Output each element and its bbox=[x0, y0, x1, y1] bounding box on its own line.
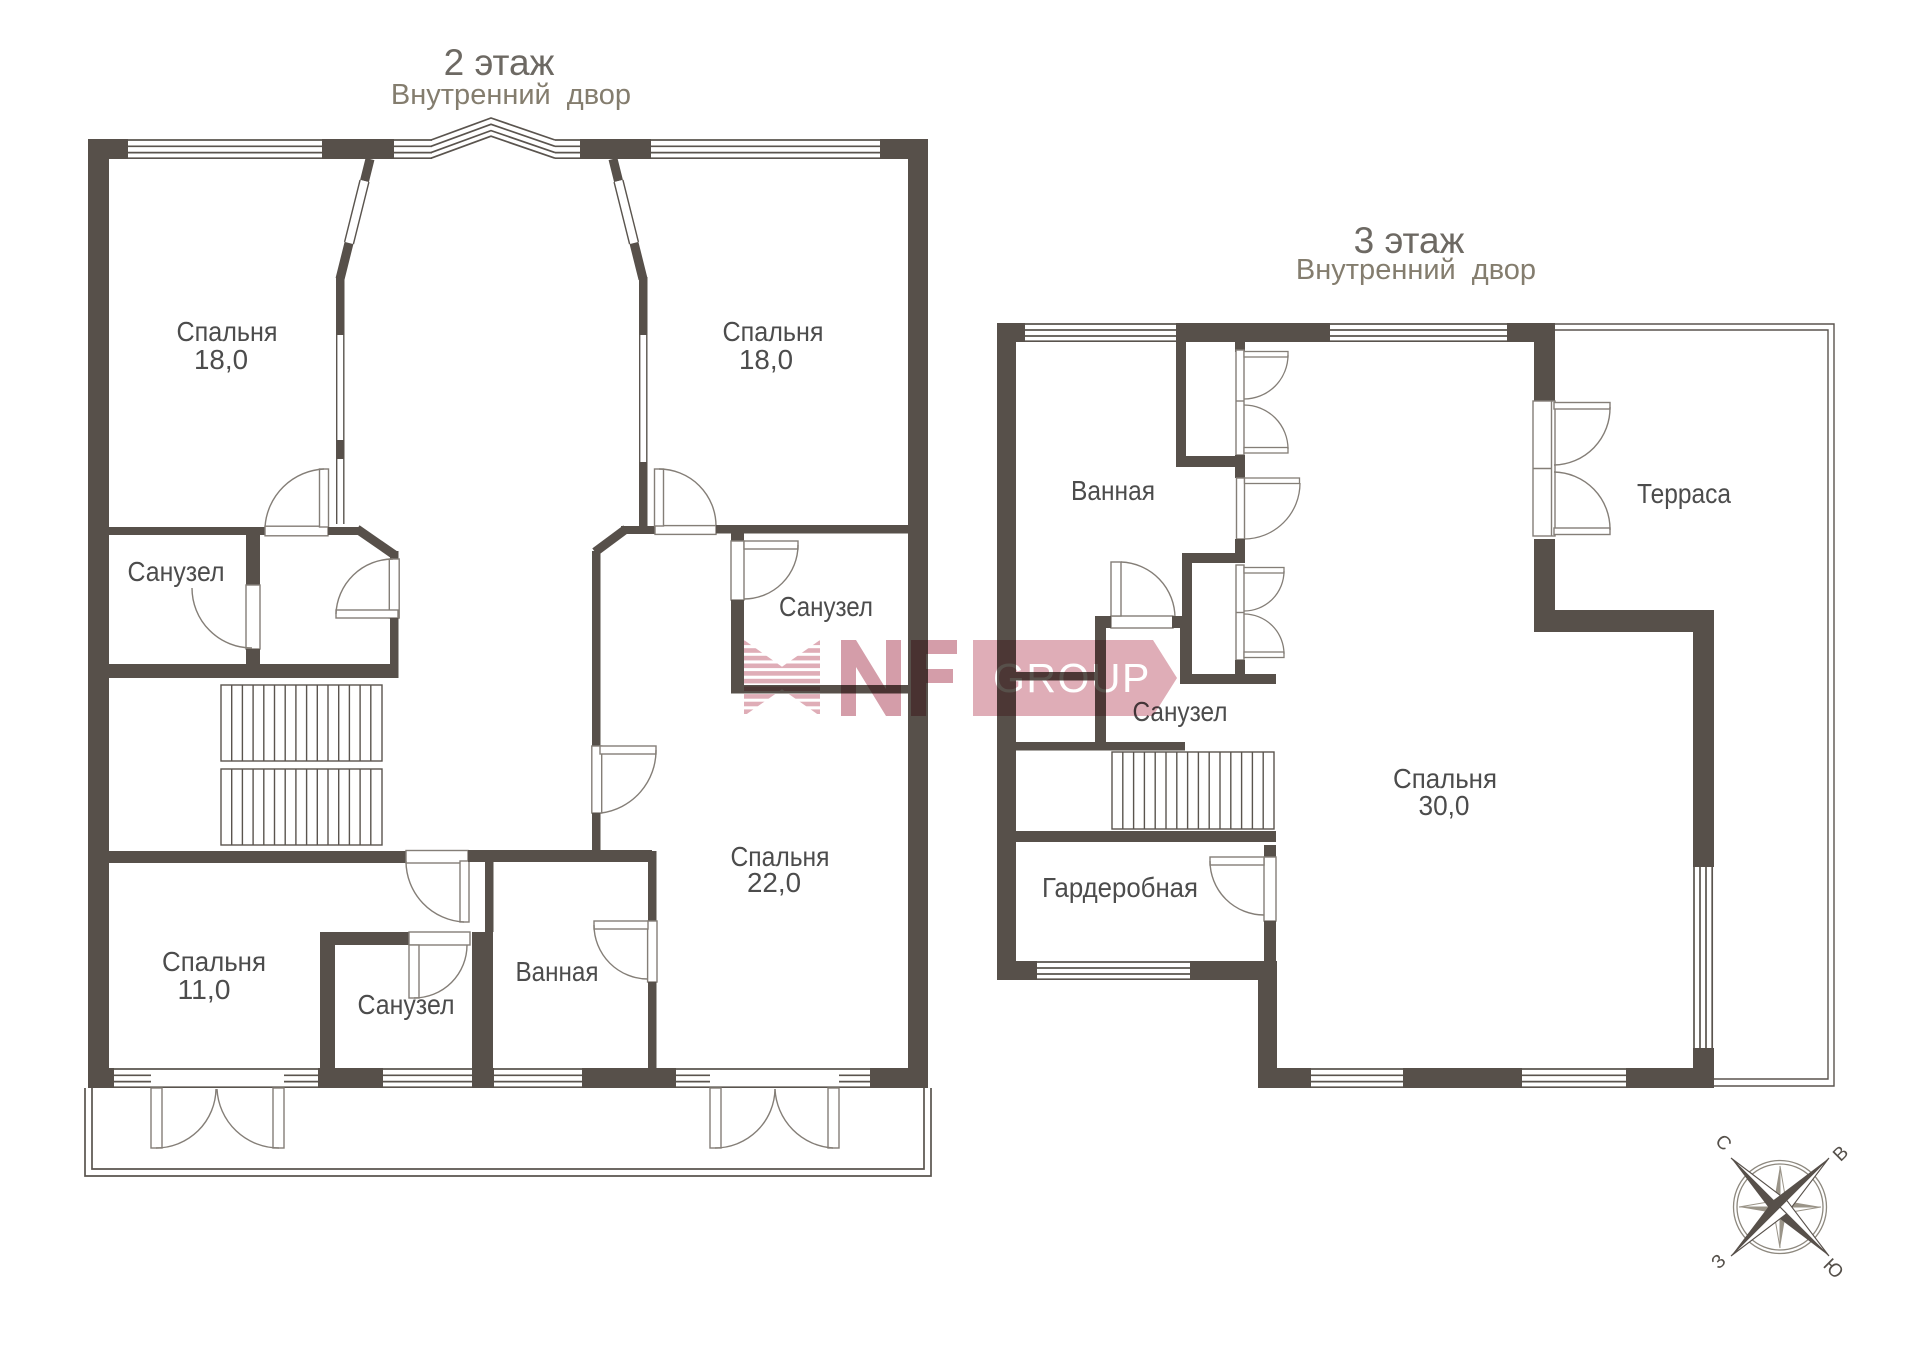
svg-text:Ванная: Ванная bbox=[516, 956, 599, 987]
svg-text:22,0: 22,0 bbox=[747, 867, 801, 898]
svg-text:Санузел: Санузел bbox=[779, 591, 873, 622]
svg-text:Ванная: Ванная bbox=[1071, 475, 1155, 506]
svg-text:30,0: 30,0 bbox=[1419, 790, 1470, 821]
svg-text:Спальня: Спальня bbox=[723, 316, 824, 347]
svg-text:Санузел: Санузел bbox=[128, 556, 225, 587]
svg-text:2 этаж: 2 этаж bbox=[444, 42, 555, 83]
svg-text:Терраса: Терраса bbox=[1637, 478, 1731, 509]
svg-text:Санузел: Санузел bbox=[358, 989, 455, 1020]
svg-text:Внутренний двор: Внутренний двор bbox=[391, 79, 631, 111]
svg-text:Внутренний двор: Внутренний двор bbox=[1296, 254, 1536, 286]
svg-text:Спальня: Спальня bbox=[162, 946, 266, 977]
svg-text:Гардеробная: Гардеробная bbox=[1042, 872, 1198, 903]
svg-text:18,0: 18,0 bbox=[739, 344, 793, 375]
svg-text:Спальня: Спальня bbox=[177, 316, 278, 347]
svg-text:11,0: 11,0 bbox=[178, 974, 231, 1005]
svg-text:18,0: 18,0 bbox=[194, 344, 248, 375]
svg-text:GROUP: GROUP bbox=[993, 655, 1151, 701]
